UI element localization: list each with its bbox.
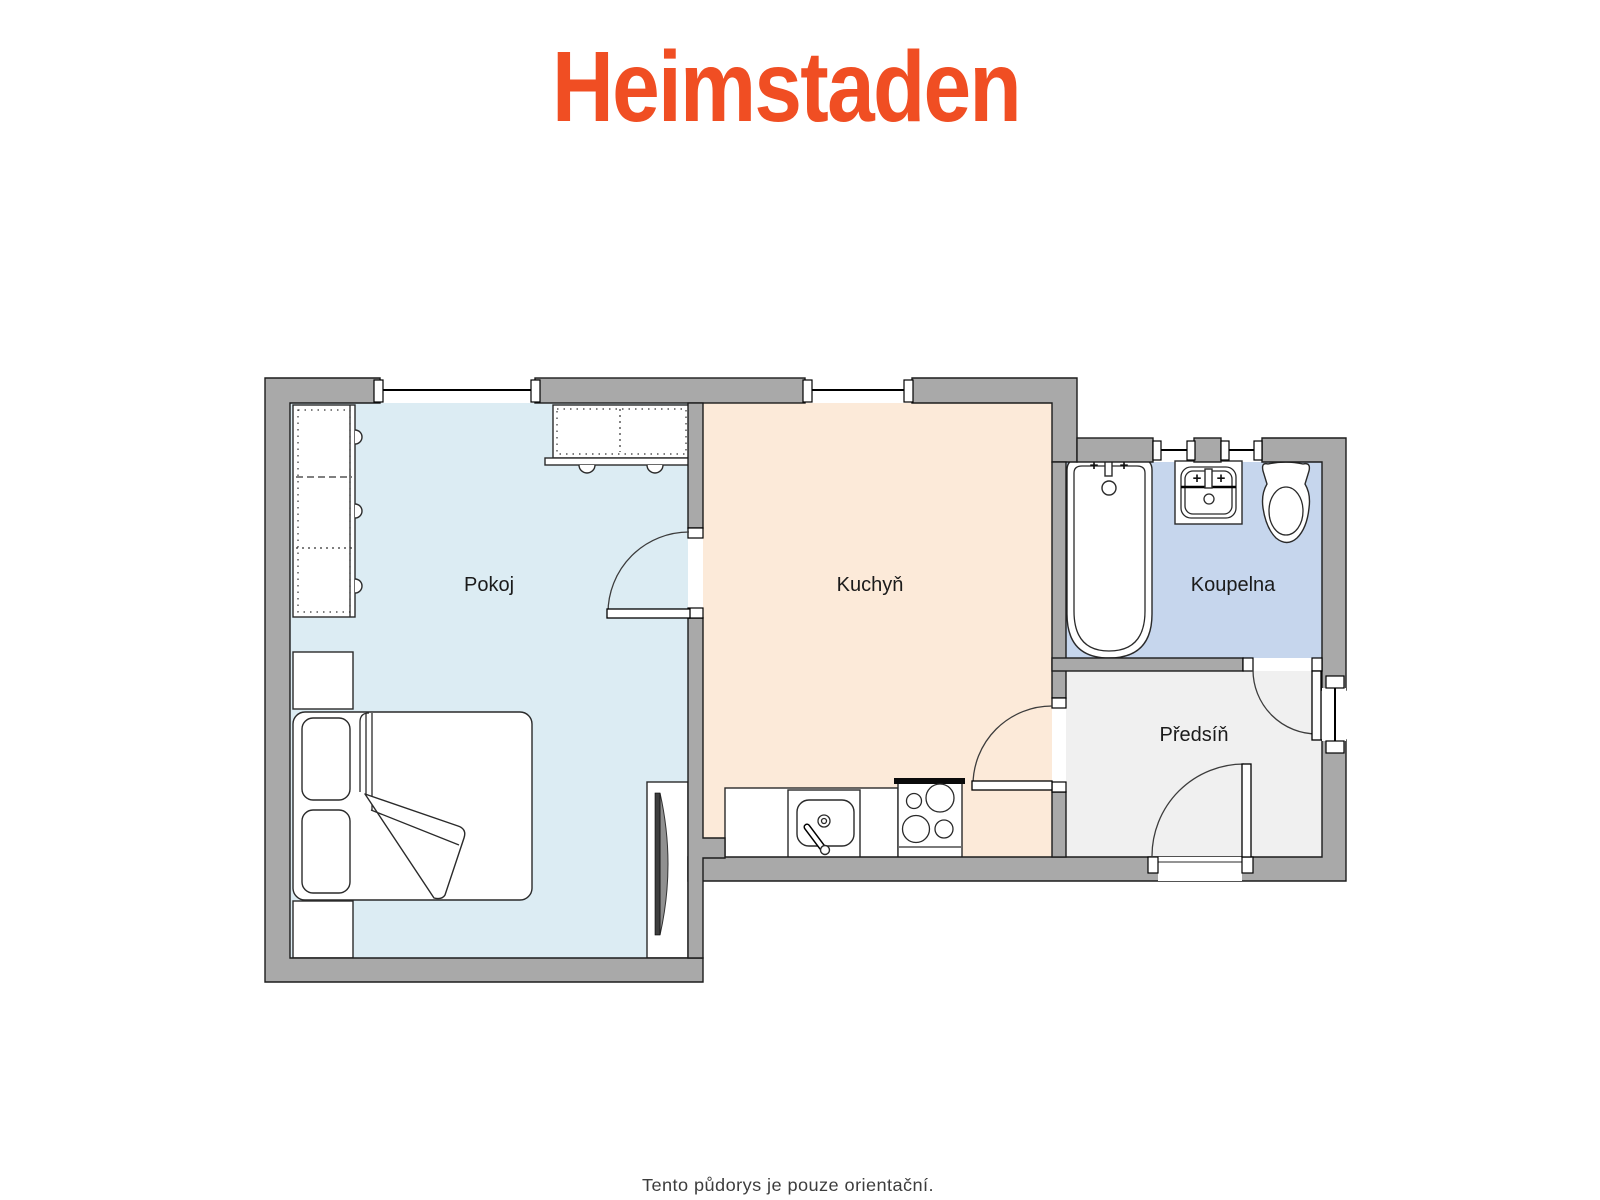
bathtub: + + bbox=[1067, 449, 1152, 658]
stove bbox=[894, 778, 965, 858]
window-koupelna-left bbox=[1153, 441, 1195, 460]
brand-logo: Heimstaden bbox=[552, 31, 1020, 143]
svg-text:+: + bbox=[1193, 470, 1202, 487]
tv bbox=[647, 782, 688, 958]
kitchen-sink bbox=[788, 790, 860, 858]
label-pokoj: Pokoj bbox=[464, 574, 514, 596]
pillow bbox=[302, 810, 350, 893]
page-canvas: Heimstaden bbox=[0, 0, 1600, 1200]
label-predsin: Předsíň bbox=[1160, 724, 1229, 746]
pillow bbox=[302, 718, 350, 800]
wall-partition-upper bbox=[688, 403, 703, 528]
label-kuchyn: Kuchyň bbox=[837, 574, 904, 596]
washbasin: + + bbox=[1175, 461, 1242, 524]
footer-disclaimer: Tento půdorys je pouze orientační. bbox=[642, 1175, 934, 1195]
basin-tap-icon bbox=[1205, 469, 1212, 488]
nightstand-top bbox=[293, 652, 353, 709]
window-kuchyn-top bbox=[803, 380, 913, 402]
wardrobe-left bbox=[293, 405, 362, 617]
wall-bath-window-pier bbox=[1194, 438, 1221, 462]
double-bed bbox=[293, 712, 532, 900]
wall-bath-top bbox=[1077, 438, 1153, 462]
wardrobe-top bbox=[545, 405, 690, 473]
label-koupelna: Koupelna bbox=[1191, 574, 1276, 596]
floorplan-svg: Heimstaden bbox=[0, 0, 1600, 1200]
window-koupelna-right bbox=[1221, 441, 1262, 460]
floor-predsin bbox=[1066, 671, 1322, 857]
window-pokoj-top bbox=[374, 380, 540, 402]
svg-text:+: + bbox=[1217, 470, 1226, 487]
wall-top-mid bbox=[535, 378, 805, 403]
toilet bbox=[1263, 462, 1310, 543]
wall-hall-left-lower bbox=[1052, 792, 1066, 857]
wall-bath-bottom bbox=[1052, 658, 1243, 671]
nightstand-bottom bbox=[293, 901, 353, 958]
